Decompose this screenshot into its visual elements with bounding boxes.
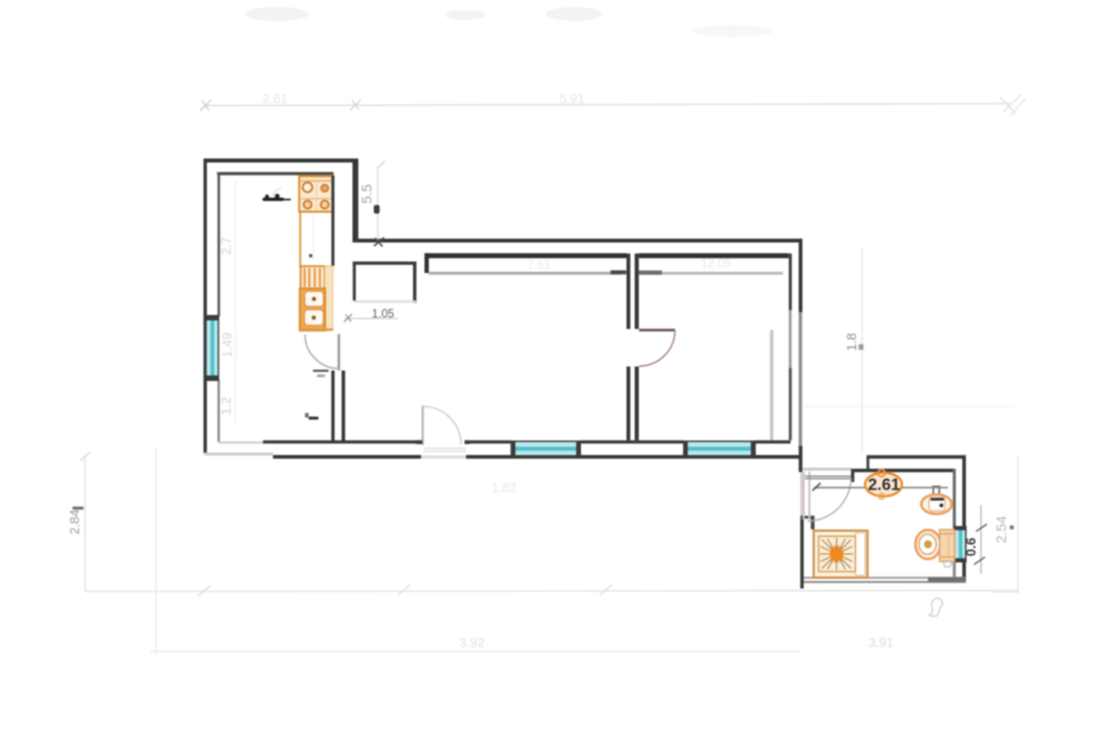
svg-text:3.91: 3.91: [868, 635, 893, 650]
svg-text:1.8: 1.8: [844, 333, 859, 351]
svg-text:1.49: 1.49: [220, 332, 235, 357]
svg-text:2.84: 2.84: [67, 509, 82, 534]
svg-text:7.61: 7.61: [527, 258, 551, 272]
svg-text:2.61: 2.61: [868, 476, 900, 494]
svg-text:1.82: 1.82: [491, 480, 516, 495]
svg-text:2.7: 2.7: [219, 237, 234, 255]
svg-text:2.61: 2.61: [262, 91, 287, 106]
svg-text:1.2: 1.2: [219, 397, 234, 415]
svg-text:5.91: 5.91: [559, 91, 584, 106]
svg-text:12.05: 12.05: [701, 256, 731, 270]
svg-text:0.6: 0.6: [964, 537, 979, 556]
svg-text:2.54: 2.54: [993, 516, 1009, 543]
svg-text:1.05: 1.05: [372, 309, 394, 321]
svg-text:5.5: 5.5: [359, 184, 375, 204]
svg-text:3.92: 3.92: [459, 635, 484, 650]
